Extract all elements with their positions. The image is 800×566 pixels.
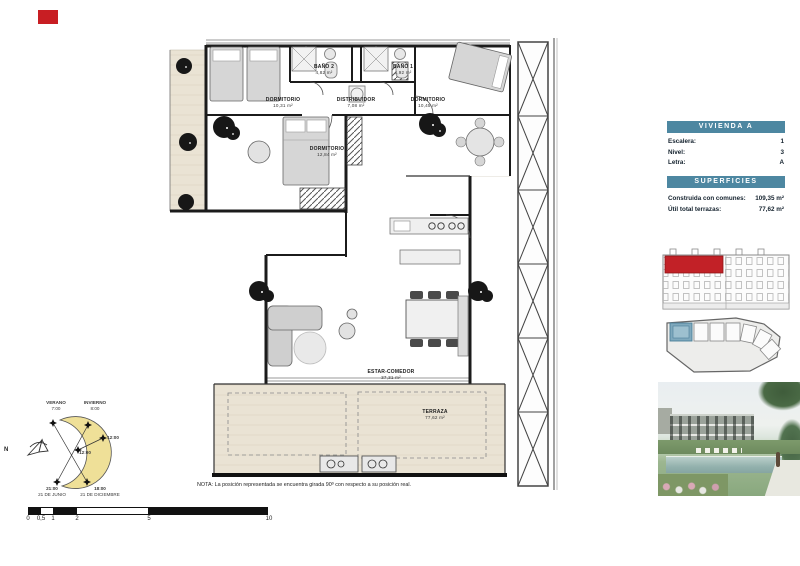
date: 21 DE JUNIO <box>38 492 66 498</box>
plan-sheet: DORMITORIO 10,31 m² BAÑO 2 4,82 m² DISTR… <box>0 0 800 566</box>
row-label: Construida con comunes: <box>668 195 746 204</box>
room-label-distribuidor: DISTRIBUIDOR 7,08 m² <box>337 97 376 109</box>
room-area: 10,31 m² <box>266 103 300 109</box>
scale-tick: 0,5 <box>37 516 45 522</box>
superficies-row-terrazas: Útil total terrazas: 77,62 m² <box>667 205 785 216</box>
scale-segment <box>77 508 148 514</box>
structural-tower <box>518 42 548 486</box>
room-area: 7,08 m² <box>337 103 376 109</box>
scale-segment <box>29 508 41 514</box>
room-area: 4,82 m² <box>314 70 334 76</box>
date: 21 DE DICIEMBRE <box>80 492 120 498</box>
info-row-letra: Letra: A <box>667 158 785 169</box>
room-area: 37,31 m² <box>368 375 415 381</box>
scale-segment <box>53 508 77 514</box>
room-label-bano-2: BAÑO 2 4,82 m² <box>314 64 334 76</box>
room-name: TERRAZA <box>422 409 447 415</box>
row-label: Escalera: <box>668 138 696 147</box>
top-glazing-line <box>206 40 510 43</box>
superficies-row-construida: Construida con comunes: 109,35 m² <box>667 194 785 205</box>
room-area: 12,84 m² <box>310 152 344 158</box>
north-label: N <box>4 447 8 453</box>
room-name: DISTRIBUIDOR <box>337 97 376 103</box>
room-name: BAÑO 2 <box>314 64 334 70</box>
row-value: 77,62 m² <box>759 206 784 215</box>
info-row-nivel: Nivel: 3 <box>667 148 785 159</box>
row-label: Letra: <box>668 159 686 168</box>
room-label-terraza: TERRAZA 77,62 m² <box>422 409 447 421</box>
room-label-bano-1: BAÑO 1 4,92 m² <box>393 64 413 76</box>
room-area: 77,62 m² <box>422 415 447 421</box>
row-value: A <box>779 159 784 168</box>
sun-label-noon-outer: 12:00 <box>107 435 119 441</box>
sun-label-winter-sunset: 18:00 21 DE DICIEMBRE <box>80 486 120 497</box>
label: VERANO <box>46 400 66 405</box>
scale-bar-segments <box>28 507 268 515</box>
time: 12:00 <box>79 450 91 455</box>
scale-tick: 2 <box>75 516 78 522</box>
row-label: Nivel: <box>668 149 685 158</box>
site-plan-diagram <box>664 315 784 377</box>
scale-segment <box>148 508 267 514</box>
room-name: DORMITORIO <box>266 97 300 103</box>
scale-segment <box>41 508 53 514</box>
time: 12:00 <box>107 435 119 440</box>
room-name: DORMITORIO <box>310 146 344 152</box>
row-label: Útil total terrazas: <box>668 206 721 215</box>
sun-label-invierno: INVIERNO 8:00 <box>84 400 106 411</box>
room-name: ESTAR-COMEDOR <box>368 369 415 375</box>
room-name: BAÑO 1 <box>393 64 413 70</box>
building-render-photo <box>658 382 800 496</box>
room-label-estar-comedor: ESTAR-COMEDOR 37,31 m² <box>368 369 415 381</box>
terraza-floor <box>214 384 505 475</box>
photo-sun-loungers <box>696 448 742 453</box>
photo-person <box>776 452 780 467</box>
scale-bar: 0 0,5 1 2 5 10 <box>28 507 268 531</box>
row-value: 109,35 m² <box>755 195 784 204</box>
info-row-escalera: Escalera: 1 <box>667 137 785 148</box>
room-area: 4,92 m² <box>393 70 413 76</box>
scale-tick: 10 <box>266 516 273 522</box>
sun-label-noon-inner: 12:00 <box>79 450 91 456</box>
highlighted-unit-elevation <box>665 256 723 273</box>
north-compass-icon <box>28 440 48 455</box>
photo-flowers <box>658 474 728 496</box>
room-label-dormitorio-1: DORMITORIO 10,45 m² <box>411 97 445 109</box>
superficies-table: Construida con comunes: 109,35 m² Útil t… <box>667 194 785 215</box>
sun-label-summer-sunset: 21:00 21 DE JUNIO <box>38 486 66 497</box>
scale-tick: 5 <box>147 516 150 522</box>
scale-tick: 1 <box>51 516 54 522</box>
vivienda-header: VIVIENDA A <box>667 121 785 133</box>
scale-tick: 0 <box>26 516 29 522</box>
row-value: 1 <box>780 138 784 147</box>
building-elevation-diagram <box>660 243 792 315</box>
row-value: 3 <box>780 149 784 158</box>
side-terrace-floor <box>170 50 206 211</box>
room-area: 10,45 m² <box>411 103 445 109</box>
time: 8:00 <box>84 406 106 412</box>
plan-note: NOTA: La posición representada se encuen… <box>197 482 447 488</box>
vivienda-info-table: Escalera: 1 Nivel: 3 Letra: A <box>667 137 785 169</box>
room-name: DORMITORIO <box>411 97 445 103</box>
time: 21:00 <box>46 486 58 491</box>
superficies-header: SUPERFICIES <box>667 176 785 188</box>
label: INVIERNO <box>84 400 106 405</box>
room-label-dormitorio-principal: DORMITORIO 12,84 m² <box>310 146 344 158</box>
sun-label-verano: VERANO 7:00 <box>46 400 66 411</box>
time: 7:00 <box>46 406 66 412</box>
room-label-dormitorio-2: DORMITORIO 10,31 m² <box>266 97 300 109</box>
photo-pool <box>666 456 782 473</box>
time: 18:00 <box>94 486 106 491</box>
